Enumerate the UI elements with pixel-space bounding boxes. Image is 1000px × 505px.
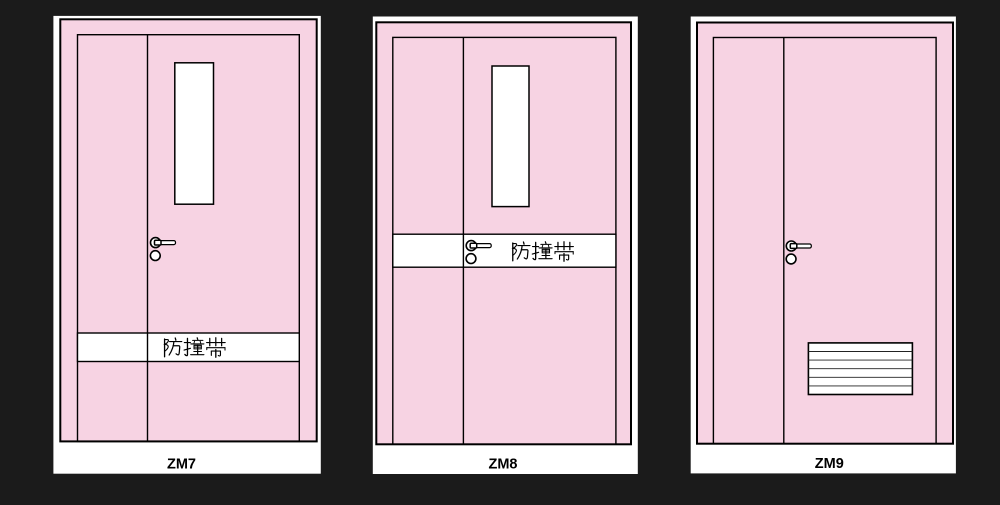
svg-text:ZM8: ZM8	[489, 456, 518, 472]
svg-text:ZM9: ZM9	[815, 456, 844, 472]
svg-text:ZM7: ZM7	[167, 456, 196, 472]
